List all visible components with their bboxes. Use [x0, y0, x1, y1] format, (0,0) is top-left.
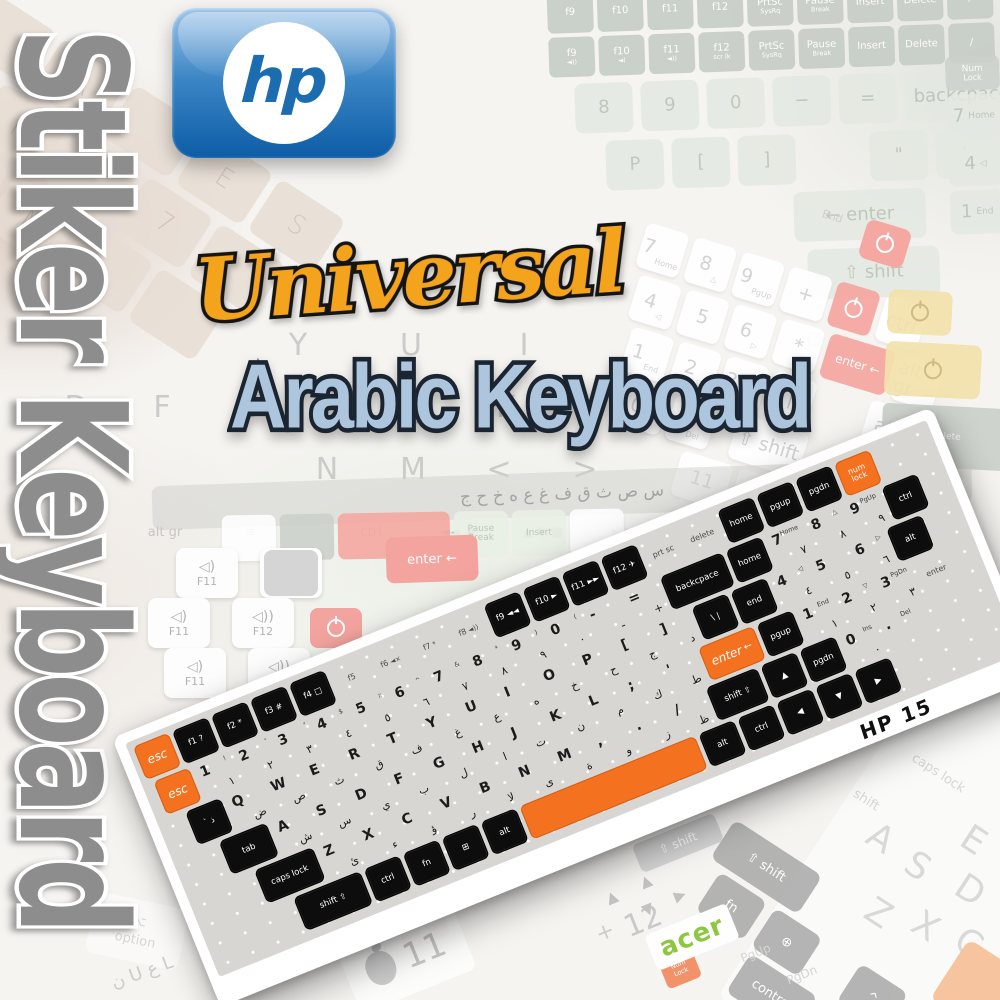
keyboard-key: 4◁	[948, 141, 1000, 187]
keyboard-key: P	[605, 139, 665, 191]
keyboard-key	[884, 341, 983, 400]
keyboard-key: PrtScSysRq	[746, 0, 793, 27]
key-row: NumLock	[945, 55, 1000, 91]
keyboard-key: f12scr lk	[698, 31, 745, 73]
keyboard-key: PrtScSysRq	[748, 29, 795, 71]
windows-key: ⊞	[441, 824, 490, 872]
keyboard-key: ◁)F11	[176, 548, 238, 598]
keyboard-key: f9◄))	[548, 36, 595, 78]
keyboard-key: alt	[698, 720, 747, 768]
keyboard-key: f11◄))	[648, 33, 695, 75]
keyboard-key: f10◄)	[598, 34, 645, 76]
keyboard-key: ◁)F11	[164, 648, 226, 698]
keyboard-key: "	[869, 130, 929, 182]
keyboard-key: ◁))F12	[232, 598, 294, 648]
keyboard-key: Insert	[512, 510, 567, 557]
keyboard-key: f9	[547, 0, 594, 34]
keyboard-key: 1End	[950, 189, 1000, 235]
power-icon	[327, 619, 345, 637]
keyboard-key: Delete	[896, 0, 943, 22]
keyboard-key: 8	[574, 82, 634, 134]
keyboard-key: 0	[706, 77, 766, 129]
key-row	[887, 289, 1000, 340]
keyboard-key: 9	[640, 79, 700, 131]
power-icon	[874, 233, 896, 255]
keyboard-key: fn	[402, 839, 451, 887]
power-icon	[910, 303, 929, 322]
keyboard-key: NumLock	[945, 55, 1000, 91]
key-row: ◁)F11◁))F12	[148, 598, 322, 648]
keyboard-key: PauseBreak	[796, 0, 843, 25]
keyboard-key: alt	[480, 808, 529, 856]
bg-blank-key	[264, 550, 318, 596]
key-row: P[]"'	[576, 126, 1000, 191]
keyboard-key: f12	[697, 0, 744, 29]
keyboard-key: 4◁	[627, 274, 683, 331]
keyboard-key: [	[671, 136, 731, 188]
arrow-down-key: ▼	[815, 673, 864, 721]
key-row: 7Home	[946, 93, 1000, 139]
bg-enter-key: enter ←	[385, 534, 479, 583]
keyboard-key: /	[946, 0, 993, 20]
bg-numpad-column: NumLock7Home4◁1End	[945, 55, 1000, 239]
keyboard-key: f11	[647, 0, 694, 30]
keyboard-key	[887, 289, 953, 336]
power-icon	[923, 361, 942, 380]
keyboard-key: =	[838, 73, 898, 125]
keyboard-key: −	[772, 75, 832, 127]
keyboard-key: 5	[675, 289, 731, 346]
apple-logo-icon	[361, 947, 402, 990]
title-arabic-keyboard: Arabic Keyboard	[230, 344, 809, 450]
keyboard-key: ctrl	[737, 704, 786, 752]
option-label: option	[113, 929, 156, 952]
keyboard-key: Insert	[848, 26, 895, 68]
keyboard-key: Insert	[846, 0, 893, 23]
hp-logo: hp	[172, 8, 396, 158]
keyboard-key: ctrl	[364, 855, 413, 903]
keyboard-key: f10	[597, 0, 644, 32]
arrow-right-key: ▶	[854, 657, 903, 705]
keyboard-key: PauseBreak	[798, 27, 845, 69]
key-row	[884, 341, 1000, 402]
arrow-left-key: ◀	[776, 688, 825, 736]
keyboard-key: 7Home	[946, 93, 1000, 139]
power-icon	[842, 298, 864, 320]
keyboard-key: ]	[737, 134, 797, 186]
key-row: 1End	[950, 189, 1000, 235]
hp-logo-text: hp	[233, 44, 336, 117]
keyboard-key: Delete	[898, 24, 945, 66]
key-row: 4◁	[948, 141, 1000, 187]
